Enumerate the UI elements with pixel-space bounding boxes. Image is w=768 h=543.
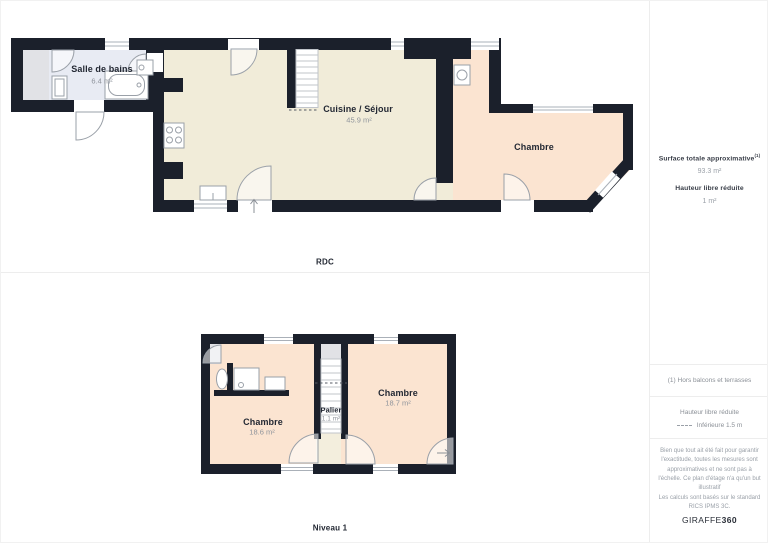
sidebar-section-divider xyxy=(650,396,768,397)
footnote-balconies: (1) Hors balcons et terrasses xyxy=(650,377,768,384)
toilet-icon xyxy=(265,377,285,390)
floors-divider xyxy=(1,272,650,273)
sidebar-section-divider xyxy=(650,438,768,439)
room-label-cuisine-sejour: Cuisine / Séjour xyxy=(323,104,393,114)
floor-label-niveau1: Niveau 1 xyxy=(313,524,348,533)
reduced-height-value: 1 m² xyxy=(650,198,768,205)
dashed-line-icon xyxy=(677,425,692,426)
sidebar-section-divider xyxy=(650,364,768,365)
room-label-salle-de-bains: Salle de bains xyxy=(71,64,132,74)
disclaimer-text: Bien que tout ait été fait pour garantir… xyxy=(650,447,768,493)
surface-total-title-text: Surface totale approximative xyxy=(659,155,755,162)
standard-text: Les calculs sont basés sur le standard R… xyxy=(650,494,768,513)
legend-item-text: Inférieure 1.5 m xyxy=(697,422,743,429)
sink-icon xyxy=(217,369,228,389)
room-area-salle-de-bains: 6.4 m² xyxy=(91,77,112,86)
room-area-chambre-1: 18.6 m² xyxy=(249,428,274,437)
legend-reduced-height-item: Inférieure 1.5 m xyxy=(650,422,768,429)
water-heater-icon xyxy=(454,65,470,85)
legend-title: Hauteur libre réduite xyxy=(650,409,768,416)
kitchen-sink-icon xyxy=(200,186,226,200)
brand-last: 360 xyxy=(722,515,737,525)
room-label-chambre-1: Chambre xyxy=(243,417,283,427)
room-label-palier: Palier xyxy=(320,406,341,415)
floor-label-rdc: RDC xyxy=(316,258,334,267)
reduced-height-title: Hauteur libre réduite xyxy=(650,185,768,192)
giraffe360-logo: GIRAFFE360 xyxy=(650,515,768,525)
bathroom-sink-icon xyxy=(52,76,67,99)
room-area-palier: 1.1 m² xyxy=(322,416,340,423)
room-area-chambre-2: 18.7 m² xyxy=(385,399,410,408)
floorplan-page: Salle de bains 6.4 m² Cuisine / Séjour 4… xyxy=(0,0,768,543)
shower-icon xyxy=(234,368,259,390)
room-label-chambre-2: Chambre xyxy=(378,388,418,398)
info-sidebar: Surface totale approximative(1) 93.3 m² … xyxy=(650,1,768,543)
rdc-floorplan xyxy=(1,1,649,272)
room-area-cuisine-sejour: 45.9 m² xyxy=(346,116,371,125)
surface-total-title: Surface totale approximative(1) xyxy=(650,153,768,162)
brand-first: GIRAFFE xyxy=(682,515,722,525)
room-label-chambre-rdc: Chambre xyxy=(514,142,554,152)
surface-total-value: 93.3 m² xyxy=(650,168,768,175)
stove-icon xyxy=(164,123,184,148)
surface-note-ref: (1) xyxy=(754,153,760,158)
toilet-icon xyxy=(137,60,153,75)
